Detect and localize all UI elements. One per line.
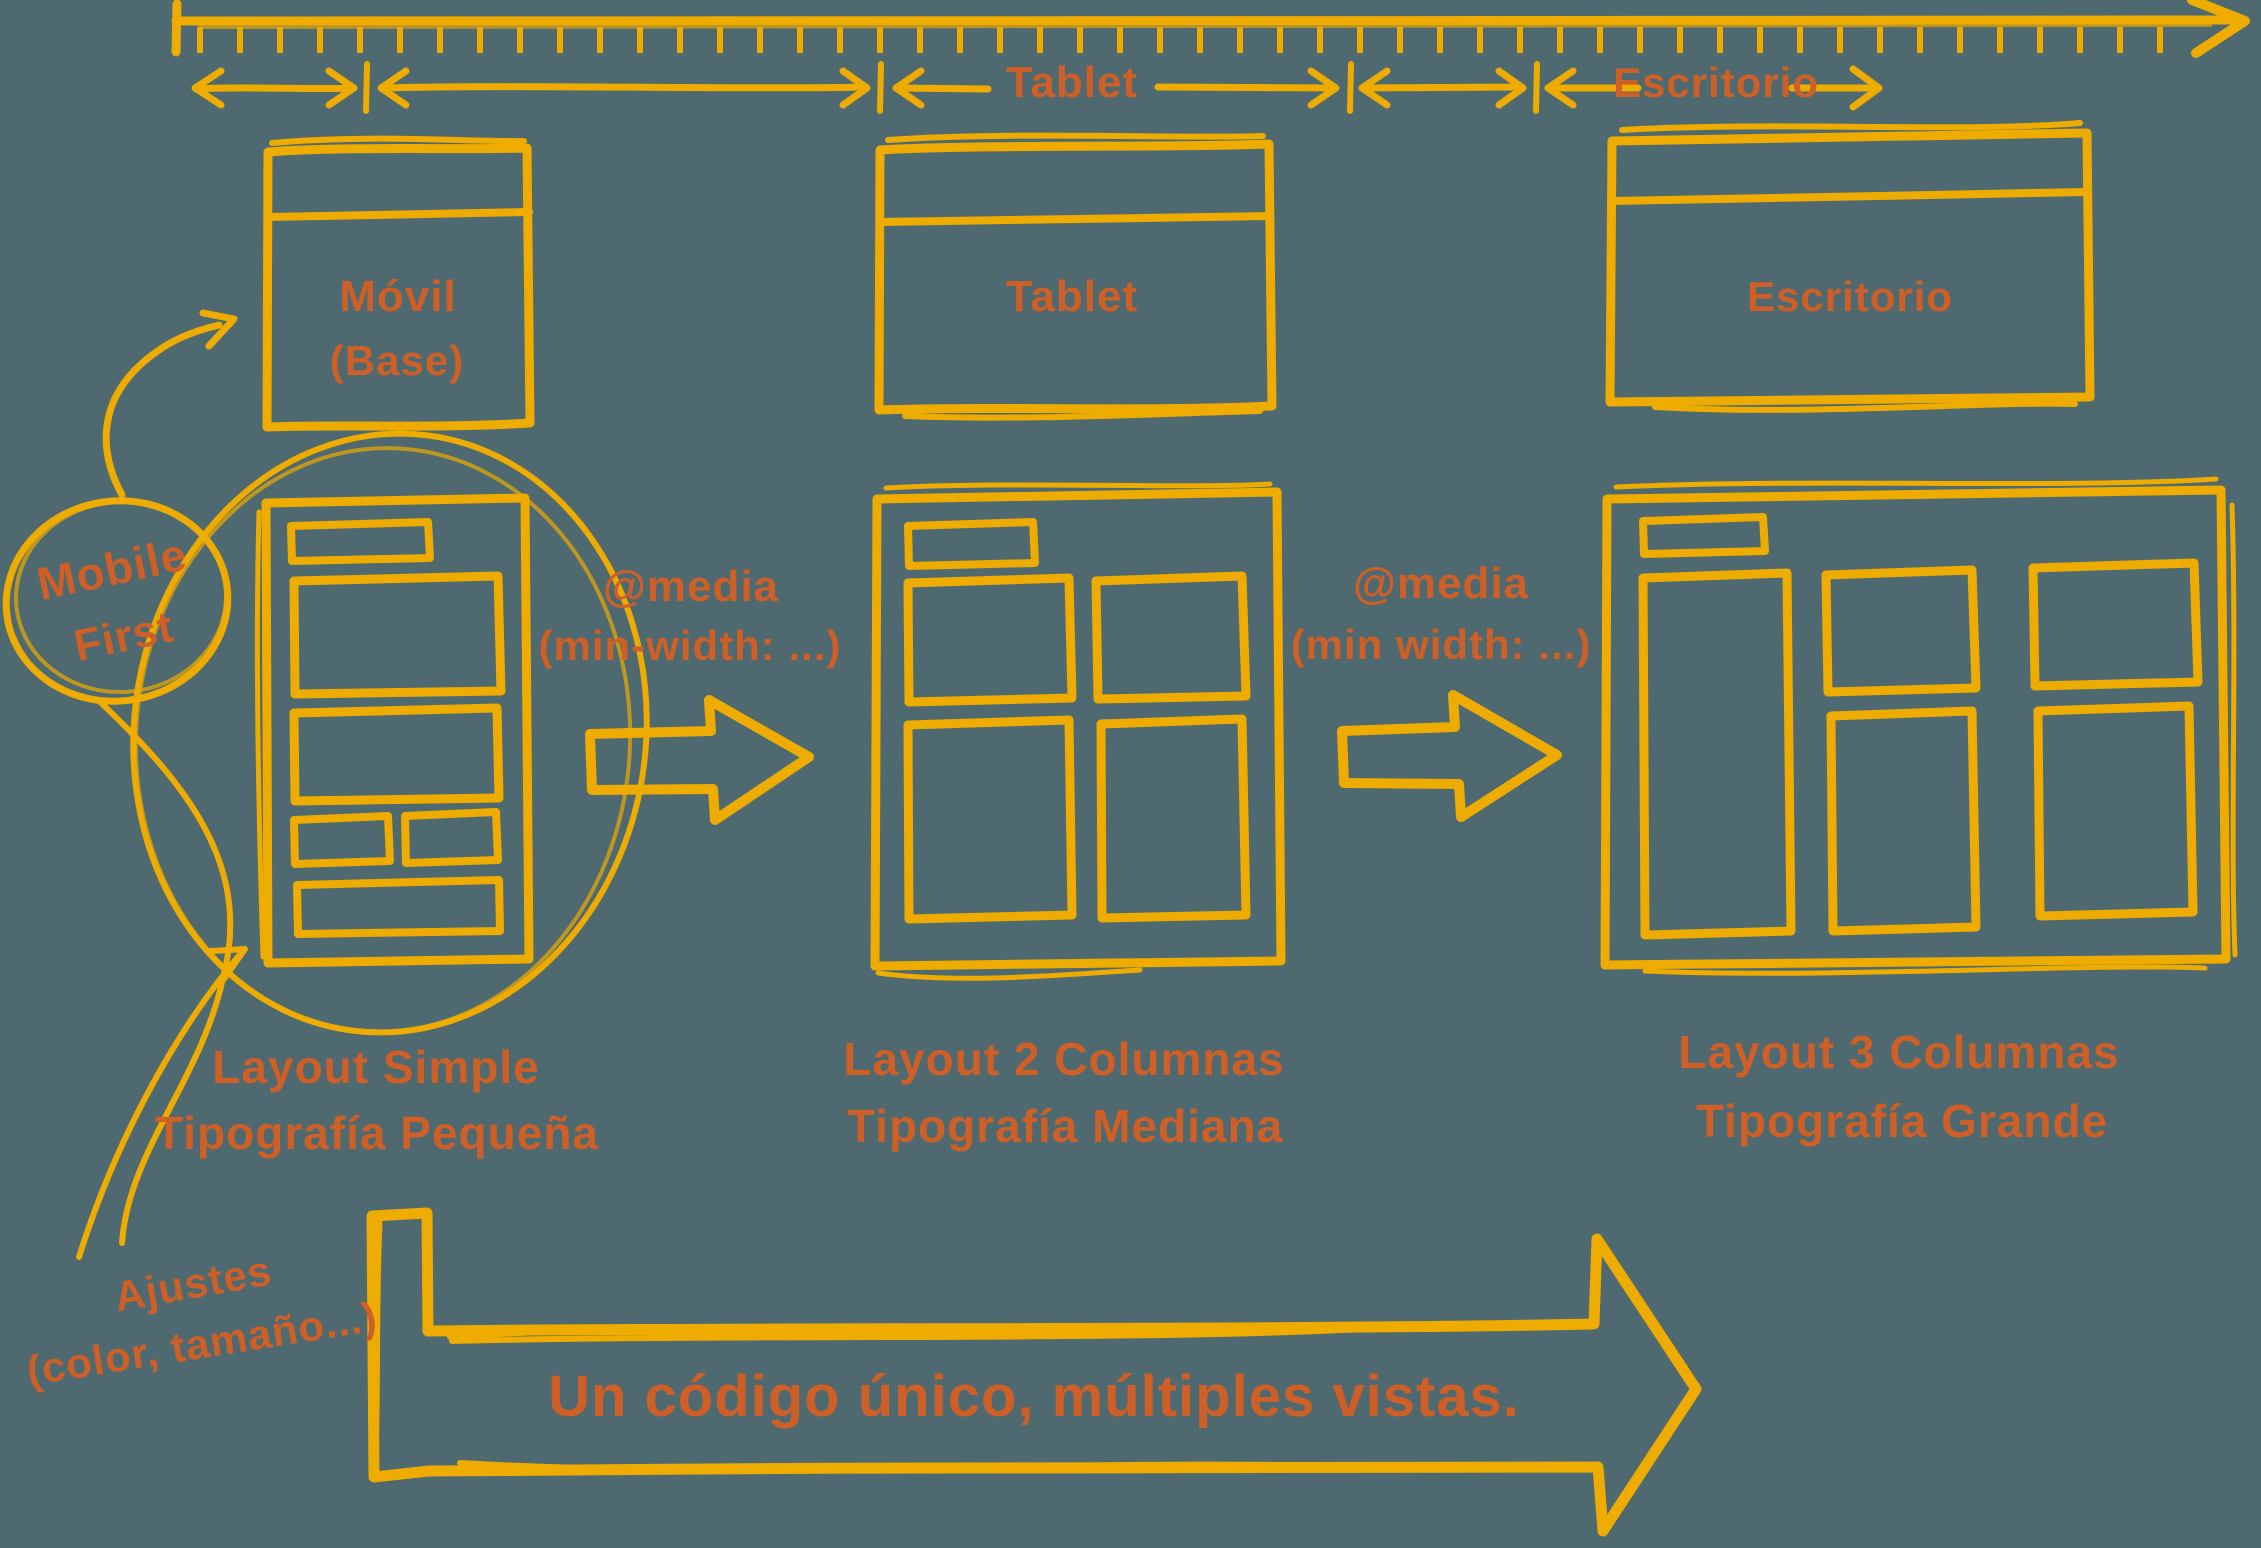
mobile-window-subtitle: (Base) (330, 340, 464, 382)
desktop-window-title: Escritorio (1747, 276, 1953, 318)
desktop-stage-label-line2: Tipografía Grande (1696, 1098, 2108, 1144)
media-arrow-2-icon (1342, 695, 1557, 817)
banner-text: Un código único, múltiples vistas. (548, 1368, 1520, 1426)
mobile-first-circle-icon (0, 487, 241, 716)
mobile-stage-label-line2: Tipografía Pequeña (155, 1110, 599, 1156)
arrow-to-mobile-window-icon (106, 313, 234, 495)
ruler-icon (176, 0, 2245, 53)
tablet-window-title: Tablet (1006, 275, 1138, 319)
tablet-stage-label-line1: Layout 2 Columnas (843, 1036, 1284, 1082)
desktop-range-label: Escritorio (1613, 62, 1819, 104)
desktop-wireframe-icon (1605, 479, 2235, 973)
responsive-design-diagram: Tablet Escritorio Móvil (Base) Tablet Es… (0, 0, 2261, 1548)
tablet-stage-label-line2: Tipografía Mediana (847, 1103, 1283, 1149)
desktop-window-icon (1610, 123, 2090, 410)
mobile-wireframe-icon (257, 498, 529, 963)
tablet-range-label: Tablet (1006, 61, 1138, 105)
media-query-1-line1: @media (603, 565, 779, 609)
media-query-2-line1: @media (1353, 562, 1529, 606)
media-query-1-line2: (min-width: ...) (539, 625, 842, 667)
tablet-wireframe-icon (875, 484, 1281, 978)
media-query-2-line2: (min width: ...) (1291, 624, 1592, 666)
mobile-window-title: Móvil (339, 275, 456, 319)
mobile-stage-label-line1: Layout Simple (212, 1044, 539, 1090)
desktop-stage-label-line1: Layout 3 Columnas (1678, 1029, 2119, 1075)
